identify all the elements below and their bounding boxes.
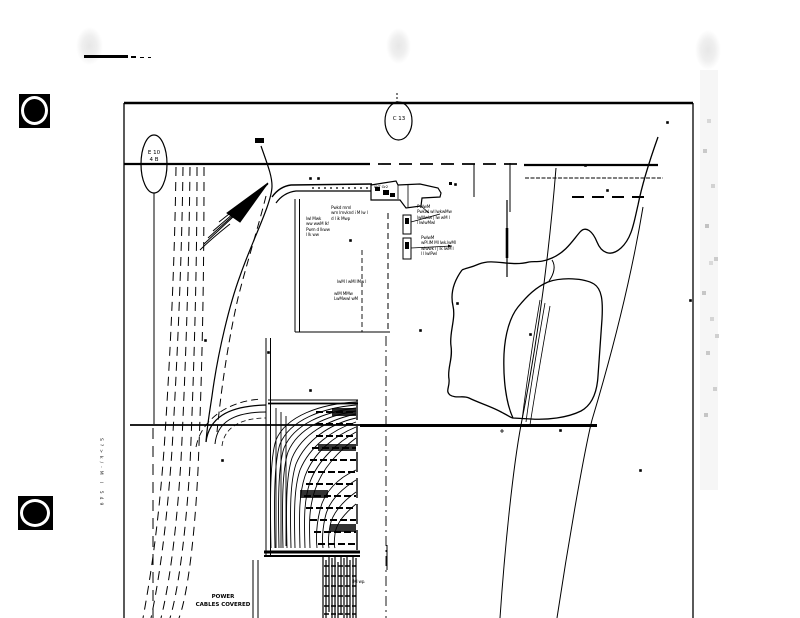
annotation-block: lwM l wMl lMw l — [337, 279, 366, 284]
annotation-block: Pwkd mmlwm lmvknd i M lw ld l ik Mwp — [331, 205, 368, 221]
roadway-band — [272, 184, 372, 203]
building-label: IWT Gr2 — [374, 185, 388, 190]
annotation-block: PwlwMwPl.lM Ml lwk.lwMlwlwwk l | lk lwM … — [421, 235, 456, 257]
ramp-edge-curve — [206, 138, 272, 442]
annotation-block: wlM MMwLwMwwl wM — [334, 291, 358, 302]
matchline-left-label: E 10 4 B — [141, 150, 167, 164]
area-outline-right — [504, 260, 603, 419]
diagonal-road-lines — [500, 168, 643, 618]
matchline-left-bubble — [124, 135, 658, 618]
power-cables-label: POWER CABLES COVERED — [178, 594, 268, 609]
area-outline-left — [448, 270, 513, 418]
left-margin-text: S?>k/-M l 549 — [98, 438, 103, 618]
site-plan-drawing — [0, 0, 800, 618]
matchline-top-label: C 13 — [386, 116, 412, 123]
annotation-block: PwlwMPwkwl wl lwkwMwlwMwlw | lw wM ll lw… — [417, 204, 452, 226]
drawing-border — [124, 103, 693, 618]
annotation-block: lwl Mwkww wwM lk!Pwm d lkwwl lk ww — [306, 216, 330, 238]
scanned-site-plan-page: E 10 4 B C 13 Pwkd mmlwm lmvknd i M lw l… — [0, 0, 800, 618]
top-right-lines — [474, 163, 663, 212]
left-road-dashed-lines — [143, 167, 204, 618]
sweep-curves — [196, 399, 266, 447]
stream-line — [462, 137, 658, 270]
annotation-block: lMl wp. — [352, 579, 365, 584]
contour-interchange — [264, 400, 360, 556]
lane-taper-fan — [200, 183, 268, 250]
